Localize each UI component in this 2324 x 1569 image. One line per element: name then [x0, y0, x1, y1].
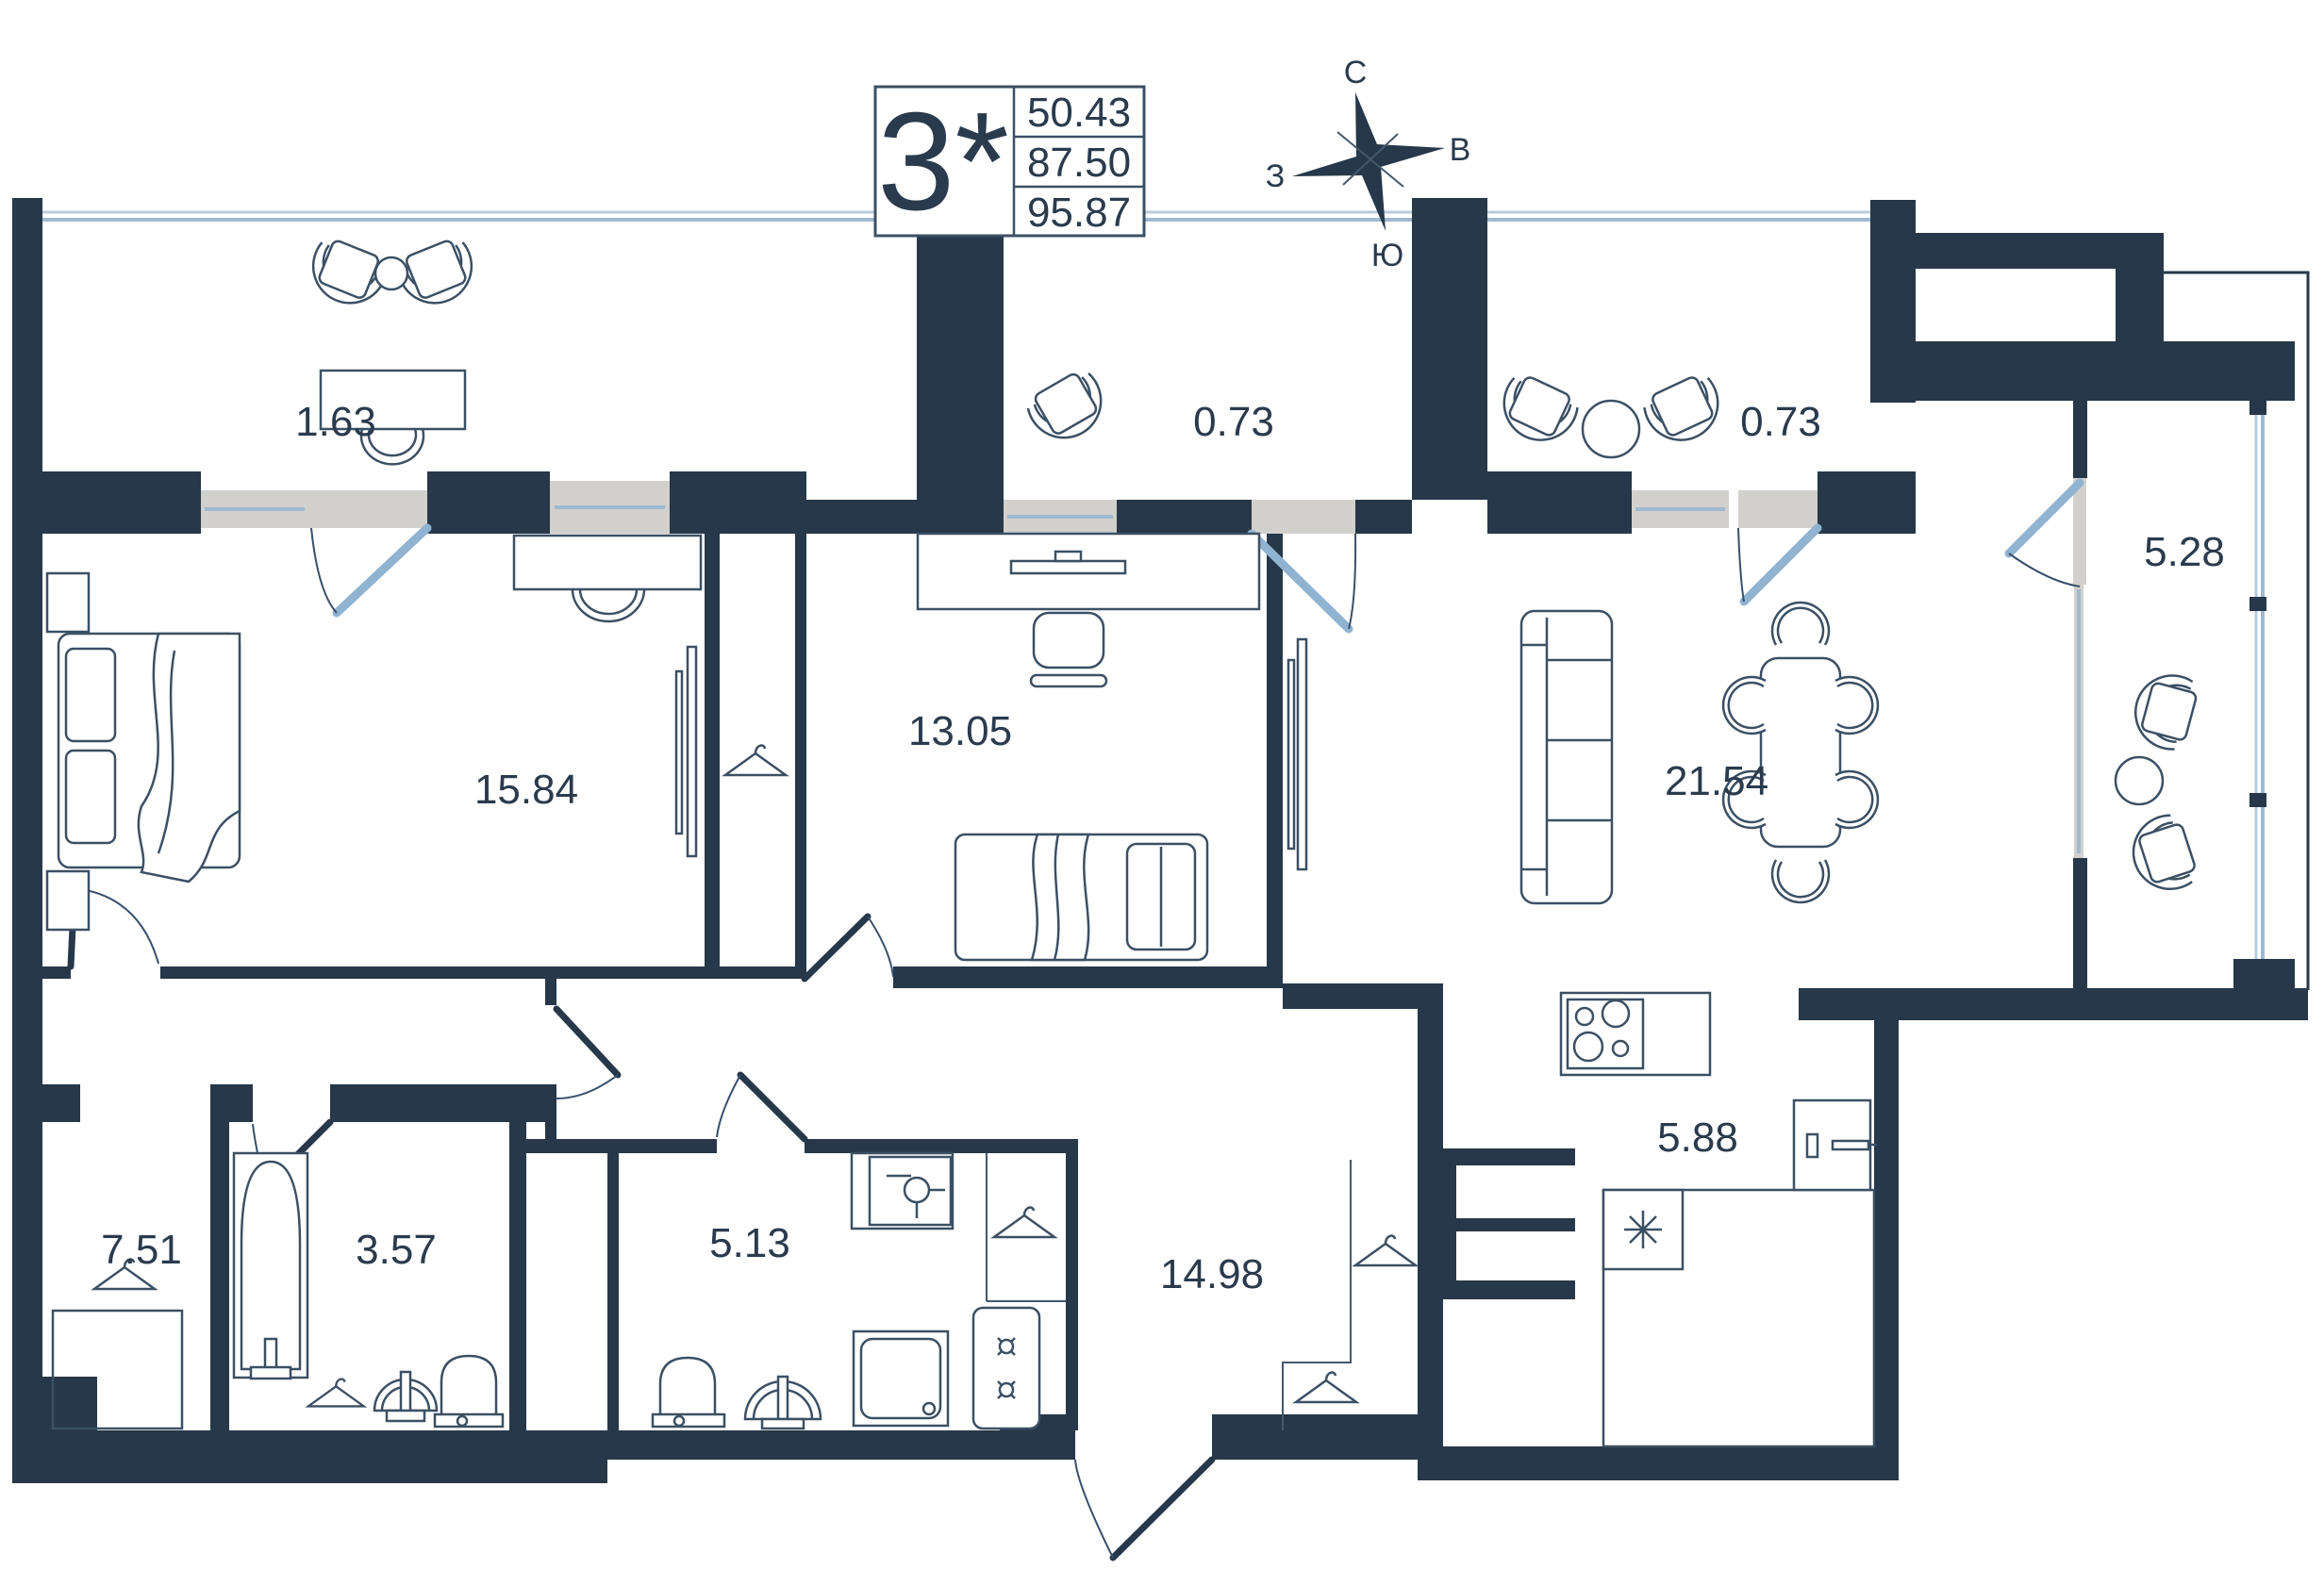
office-desk — [918, 534, 1259, 686]
living-tv — [1288, 639, 1306, 869]
compass-south: Ю — [1371, 238, 1403, 273]
label-balcony-right: 0.73 — [1740, 399, 1821, 445]
area-apartment: 87.50 — [1027, 140, 1131, 186]
sofa — [1521, 611, 1612, 903]
compass-west: З — [1266, 158, 1286, 194]
bedroom-tv — [676, 647, 696, 856]
label-balcony-middle: 0.73 — [1193, 399, 1274, 445]
floor-plan-drawing: 1.63 0.73 0.73 5.28 15.84 13.05 21.54 7.… — [0, 0, 2324, 1569]
rooms-count: 3* — [877, 84, 1009, 239]
bathtub — [234, 1153, 307, 1379]
loggia-furniture — [2116, 668, 2200, 899]
single-bed — [955, 834, 1207, 960]
balcony-middle-furniture — [1022, 366, 1114, 451]
double-bed — [47, 573, 240, 930]
area-total: 95.87 — [1027, 190, 1131, 236]
shoe-bench — [973, 1153, 1066, 1429]
fridge — [1794, 1100, 1877, 1190]
hanger-icon — [725, 746, 786, 775]
hanger-icon — [308, 1379, 364, 1407]
label-bathroom: 3.57 — [356, 1227, 437, 1273]
label-living-room: 21.54 — [1665, 758, 1768, 804]
dining-set — [1723, 603, 1878, 902]
cooktop — [1561, 993, 1710, 1075]
hanger-icon — [1355, 1236, 1416, 1265]
label-wardrobe: 7.51 — [101, 1227, 182, 1273]
floor-plan-page: 1.63 0.73 0.73 5.28 15.84 13.05 21.54 7.… — [0, 0, 2324, 1569]
label-balcony-left: 1.63 — [295, 399, 376, 445]
label-office: 13.05 — [908, 708, 1012, 754]
dressing-table — [514, 536, 701, 621]
label-shower-room: 5.13 — [709, 1220, 790, 1266]
compass-north: С — [1344, 55, 1368, 91]
shower — [854, 1331, 948, 1426]
label-loggia: 5.28 — [2144, 529, 2225, 575]
kitchen-sink — [1603, 1190, 1683, 1269]
sink — [745, 1377, 821, 1429]
sink — [374, 1372, 437, 1421]
label-bedroom: 15.84 — [474, 767, 578, 813]
label-kitchen: 5.88 — [1657, 1115, 1738, 1161]
area-living: 50.43 — [1027, 90, 1131, 136]
hanger-icon — [994, 1208, 1054, 1237]
balcony-right-furniture — [1492, 371, 1730, 457]
compass-east: В — [1450, 132, 1471, 168]
label-hallway: 14.98 — [1160, 1251, 1264, 1297]
toilet — [435, 1356, 503, 1427]
hanger-icon — [1296, 1373, 1356, 1402]
washing-machine — [852, 1153, 953, 1229]
toilet — [653, 1358, 724, 1427]
title-block: 3* 50.43 87.50 95.87 — [875, 84, 1144, 239]
